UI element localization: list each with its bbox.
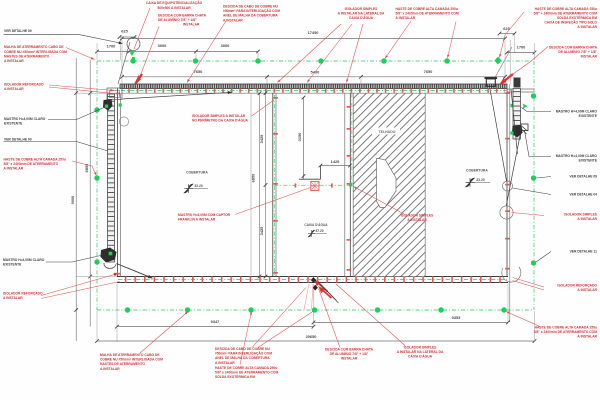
svg-text:FRANKLIN A INSTALAR: FRANKLIN A INSTALAR (178, 218, 216, 222)
svg-text:EXISTENTE: EXISTENTE (579, 114, 598, 118)
svg-text:SOLDA EXOTÉRMICA EM: SOLDA EXOTÉRMICA EM (215, 374, 255, 379)
svg-text:3425: 3425 (259, 226, 264, 235)
svg-text:A INSTALAR: A INSTALAR (4, 59, 24, 63)
svg-text:3150: 3150 (297, 133, 302, 142)
svg-text:SOLDA EXOTÉRMICA EM: SOLDA EXOTÉRMICA EM (557, 15, 597, 20)
svg-text:DE ALUMÍNIO 7/8" + 1/8": DE ALUMÍNIO 7/8" + 1/8" (158, 17, 197, 22)
svg-text:HASTE DE COBRE ALTA CAMADA 250: HASTE DE COBRE ALTA CAMADA 250u (4, 158, 66, 162)
svg-text:INSTALAR: INSTALAR (581, 55, 598, 59)
svg-text:DESCIDA COM BARRA CHATA: DESCIDA COM BARRA CHATA (549, 46, 598, 50)
svg-text:DE ALUMÍNIO 7/8" + 1/8": DE ALUMÍNIO 7/8" + 1/8" (558, 49, 597, 54)
svg-text:A INSTALAR: A INSTALAR (223, 18, 243, 22)
svg-text:ISOLADOR REFORÇADO: ISOLADOR REFORÇADO (4, 83, 44, 87)
svg-text:ISOLADOR SIMPLES: ISOLADOR SIMPLES (404, 346, 438, 350)
svg-text:9347: 9347 (211, 319, 220, 324)
svg-text:33.20: 33.20 (476, 178, 485, 182)
svg-text:ISOLADOR SIMPLES A INSTALAR: ISOLADOR SIMPLES A INSTALAR (192, 114, 246, 118)
svg-text:A INSTALAR NA LATERAL DA: A INSTALAR NA LATERAL DA (397, 350, 444, 354)
svg-text:5/8" x 2400mm DE ATERRAMENTO C: 5/8" x 2400mm DE ATERRAMENTO COM (534, 330, 597, 334)
svg-text:INSTALAR: INSTALAR (183, 23, 200, 27)
svg-text:MASTES DE ATERRAMENTO: MASTES DE ATERRAMENTO (4, 54, 50, 58)
svg-text:NO PERÍMETRO DA CAIXA D'ÁGUA: NO PERÍMETRO DA CAIXA D'ÁGUA (192, 118, 248, 123)
svg-text:A INSTALAR: A INSTALAR (396, 16, 416, 20)
svg-text:9000: 9000 (70, 196, 75, 205)
svg-text:COBERTURA: COBERTURA (186, 171, 208, 175)
svg-text:CAIXA D'ÁGUA: CAIXA D'ÁGUA (408, 354, 433, 359)
svg-text:CAIXA DE EQUIPOTENCIALIZAÇÃO: CAIXA DE EQUIPOTENCIALIZAÇÃO (146, 0, 203, 5)
svg-text:DESCIDA COM BARRA CHATA: DESCIDA COM BARRA CHATA (158, 14, 207, 18)
svg-text:DE ALUMÍNIO 7/8" + 1/8": DE ALUMÍNIO 7/8" + 1/8" (330, 351, 369, 356)
svg-text:HASTE DE COBRE ALTA CAMADA 250: HASTE DE COBRE ALTA CAMADA 250u (396, 7, 458, 11)
svg-text:EXISTENTE: EXISTENTE (3, 263, 22, 267)
svg-text:VER DETALHE 11: VER DETALHE 11 (570, 250, 598, 254)
svg-text:DESCIDA COM BARRA CHATA: DESCIDA COM BARRA CHATA (325, 348, 374, 352)
svg-text:HASTE DE COBRE ALTA CAMADA 250: HASTE DE COBRE ALTA CAMADA 250u (535, 7, 597, 11)
svg-text:MASTRO H=4,00M CLARO: MASTRO H=4,00M CLARO (4, 117, 46, 121)
svg-text:ISOLADOR SIMPLES: ISOLADOR SIMPLES (564, 213, 598, 217)
svg-text:5/8" x 2400mm DE ATERRAMENTO C: 5/8" x 2400mm DE ATERRAMENTO COM (396, 11, 459, 15)
svg-text:CAIXA D'ÁGUA: CAIXA D'ÁGUA (349, 15, 374, 20)
svg-text:#50mm² PARA INTERLIGAÇÃO COM: #50mm² PARA INTERLIGAÇÃO COM (215, 351, 272, 356)
svg-text:A INSTALAR: A INSTALAR (577, 217, 597, 221)
svg-text:VER DETALHE 09: VER DETALHE 09 (4, 138, 32, 142)
svg-text:A INSTALAR: A INSTALAR (4, 87, 24, 91)
svg-text:3000: 3000 (158, 43, 167, 48)
svg-text:A INSTALAR: A INSTALAR (100, 367, 120, 371)
svg-text:MASTRO H=4,00M CLARO: MASTRO H=4,00M CLARO (556, 154, 598, 158)
svg-text:625: 625 (503, 26, 510, 31)
svg-text:5/8" x 2400mm DE ATERRAMENTO: 5/8" x 2400mm DE ATERRAMENTO (4, 162, 59, 166)
svg-text:5/8" x 2400mm DE ATERRAMENTO C: 5/8" x 2400mm DE ATERRAMENTO COM (215, 371, 278, 375)
svg-text:ANEL DE MALHA DA COBERTURA: ANEL DE MALHA DA COBERTURA (215, 356, 270, 360)
svg-text:A INSTALAR: A INSTALAR (3, 296, 23, 300)
svg-text:500x500 A INSTALAR: 500x500 A INSTALAR (157, 6, 191, 10)
svg-text:VER DETALHE 09: VER DETALHE 09 (569, 175, 597, 179)
svg-text:1700: 1700 (107, 44, 116, 49)
svg-text:MASTRO H=4,00M COM CAPTOR: MASTRO H=4,00M COM CAPTOR (178, 213, 231, 217)
svg-text:625: 625 (121, 29, 128, 34)
svg-text:5/8" + 2400mm DE ATERRAMENTO C: 5/8" + 2400mm DE ATERRAMENTO COM (534, 11, 598, 15)
svg-text:ISOLADOR SIMPLES: ISOLADOR SIMPLES (345, 7, 379, 11)
svg-text:COBRE NU #50mm² INTERLIGADA CO: COBRE NU #50mm² INTERLIGADA COM (100, 358, 163, 362)
svg-text:17450: 17450 (308, 30, 319, 35)
svg-text:33.20: 33.20 (194, 184, 203, 188)
svg-text:3000: 3000 (221, 43, 230, 48)
svg-text:MASTRO H=4,00M CLARO: MASTRO H=4,00M CLARO (3, 258, 45, 262)
svg-text:COBRE NU #50mm² INTERLIGADA CO: COBRE NU #50mm² INTERLIGADA COM (4, 50, 67, 54)
svg-text:3425: 3425 (259, 134, 264, 143)
svg-text:MASTRO H=4,00M CLARO: MASTRO H=4,00M CLARO (556, 110, 598, 114)
svg-text:7650: 7650 (424, 69, 433, 74)
svg-text:ISOLADOR SIMPLES: ISOLADOR SIMPLES (401, 214, 435, 218)
svg-text:1425: 1425 (331, 159, 340, 164)
svg-text:1700: 1700 (517, 45, 526, 50)
svg-text:ISOLADOR REFORÇADO: ISOLADOR REFORÇADO (3, 292, 43, 296)
svg-text:VER DETALHE 04: VER DETALHE 04 (569, 193, 597, 197)
svg-text:A INSTALAR: A INSTALAR (577, 25, 597, 29)
svg-text:6850: 6850 (251, 174, 256, 183)
svg-text:HASTES DE ATERRAMENTO: HASTES DE ATERRAMENTO (100, 362, 145, 366)
svg-text:A INSTALAR: A INSTALAR (407, 218, 427, 222)
svg-text:DESCIDA DE CABO DE COBRE NU: DESCIDA DE CABO DE COBRE NU (215, 347, 270, 351)
svg-text:COBERTURA: COBERTURA (466, 169, 488, 173)
svg-text:TELHADO: TELHADO (379, 130, 396, 134)
svg-text:EXISTENTE: EXISTENTE (4, 122, 23, 126)
svg-text:HASTE DE COBRE ALTA CAMADA 250: HASTE DE COBRE ALTA CAMADA 250u (535, 326, 597, 330)
svg-text:DESCIDA DE CABO DE COBRE NU: DESCIDA DE CABO DE COBRE NU (223, 5, 278, 9)
svg-text:ISOLADOR REFORÇADO: ISOLADOR REFORÇADO (557, 284, 597, 288)
svg-text:ANEL DE MALHA DA COBERTURA: ANEL DE MALHA DA COBERTURA (223, 14, 278, 18)
svg-text:HASTE DE COBRE ALTA CAMADA 250: HASTE DE COBRE ALTA CAMADA 250u (215, 366, 277, 370)
svg-text:37.20: 37.20 (315, 229, 323, 233)
svg-text:A INSTALAR: A INSTALAR (577, 288, 597, 292)
svg-text:MALHA DE ATERRAMENTO CABO DE: MALHA DE ATERRAMENTO CABO DE (4, 45, 64, 49)
svg-text:A INSTALAR: A INSTALAR (4, 167, 24, 171)
svg-text:VER DETALHE 09: VER DETALHE 09 (4, 29, 32, 33)
svg-text:#50mm² PARA INTERLIGAÇÃO COM: #50mm² PARA INTERLIGAÇÃO COM (223, 8, 280, 13)
svg-text:INSTALAR: INSTALAR (341, 357, 358, 361)
svg-text:20650: 20650 (306, 334, 317, 339)
svg-text:A INSTALAR: A INSTALAR (577, 335, 597, 339)
svg-text:CAIXA DE INSPEÇÃO TIPO SOLO: CAIXA DE INSPEÇÃO TIPO SOLO (544, 20, 597, 25)
svg-text:9353: 9353 (452, 315, 461, 320)
svg-text:EXISTENTE: EXISTENTE (579, 159, 598, 163)
svg-text:A INSTALAR: A INSTALAR (215, 361, 235, 365)
svg-text:MALHA DE ATERRAMENTO CABO DE: MALHA DE ATERRAMENTO CABO DE (100, 353, 160, 357)
svg-text:A INSTALAR NA LATERAL DA: A INSTALAR NA LATERAL DA (338, 11, 385, 15)
svg-text:CAIXA D'ÁGUA: CAIXA D'ÁGUA (304, 222, 328, 227)
